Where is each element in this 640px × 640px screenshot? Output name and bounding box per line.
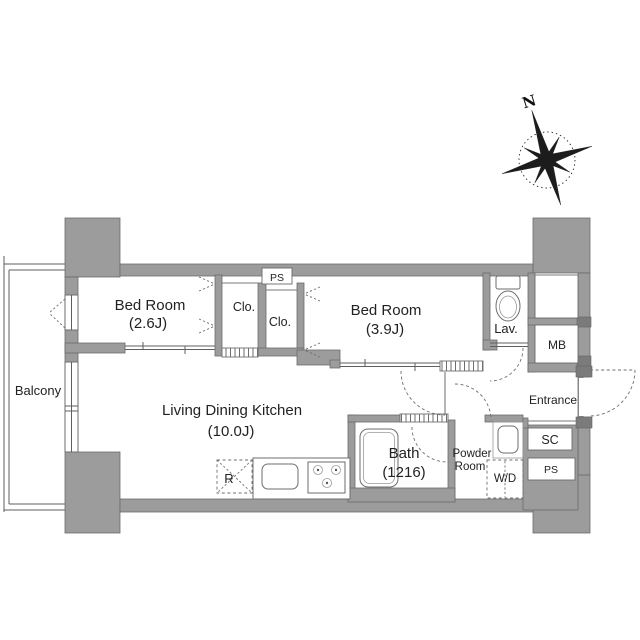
balcony: Balcony bbox=[4, 256, 65, 512]
closet-right-door-marks bbox=[304, 287, 320, 357]
toilet-icon bbox=[496, 276, 520, 321]
pipe-space-lower-label: PS bbox=[544, 464, 558, 476]
wall-left-a bbox=[65, 277, 78, 295]
wall-lav-door-stub bbox=[483, 340, 497, 350]
closet-right-label: Clo. bbox=[269, 315, 291, 329]
bedroom-large-size: (3.9J) bbox=[366, 321, 404, 338]
refrigerator-space bbox=[217, 460, 252, 493]
wall-bedroom-large-corner bbox=[330, 360, 340, 368]
kitchen-counter bbox=[253, 458, 350, 499]
bedroom-large-folding-door bbox=[440, 361, 483, 371]
lav-door-swing bbox=[490, 348, 523, 381]
wall-closet-right-side bbox=[297, 283, 304, 355]
entrance-label: Entrance bbox=[529, 393, 577, 407]
entrance-door-swing bbox=[589, 370, 635, 416]
closet-left-label: Clo. bbox=[233, 300, 255, 314]
entrance-door-opening bbox=[579, 378, 590, 416]
closet-folding-door bbox=[222, 348, 258, 357]
pillar-top-right bbox=[533, 218, 590, 273]
bedroom-small-size: (2.6J) bbox=[129, 315, 167, 332]
wall-anchor-mb-bottom bbox=[577, 356, 591, 367]
wall-powder-right bbox=[523, 418, 528, 428]
wall-closet-divider bbox=[258, 283, 266, 355]
powder-room-label-1: Powder bbox=[453, 448, 492, 460]
wall-bottom bbox=[120, 499, 533, 512]
meter-box-label: MB bbox=[548, 338, 566, 352]
bedroom-small-label: Bed Room bbox=[115, 297, 186, 314]
washbasin-icon bbox=[493, 422, 523, 458]
bath-size: (1216) bbox=[382, 464, 425, 481]
shoe-closet-label: SC bbox=[541, 433, 558, 447]
wall-anchor-entrance-bottom bbox=[576, 417, 592, 428]
bedroom-large-door-swing bbox=[401, 371, 445, 415]
wall-closet-left-side bbox=[215, 275, 222, 356]
bedroom-large-sliding-door bbox=[340, 359, 440, 371]
bedroom-balcony-window bbox=[65, 295, 78, 330]
wall-top bbox=[120, 264, 533, 276]
closet-left-door-marks bbox=[199, 277, 215, 333]
compass-diagonal-star bbox=[512, 125, 582, 195]
compass-rose: N bbox=[482, 79, 606, 218]
bath-label: Bath bbox=[389, 445, 420, 462]
wall-mb-bottom bbox=[528, 363, 583, 372]
bedroom-window-swing bbox=[49, 299, 65, 328]
pillar-top-left bbox=[65, 218, 120, 277]
ldk-balcony-window bbox=[65, 362, 78, 452]
wall-anchor-entrance-top bbox=[576, 366, 592, 377]
lavatory-label: Lav. bbox=[494, 321, 518, 336]
ldk-label: Living Dining Kitchen bbox=[162, 402, 302, 419]
refrigerator-label: R bbox=[224, 471, 233, 486]
balcony-label: Balcony bbox=[15, 383, 62, 398]
pipe-space-upper-label: PS bbox=[270, 272, 284, 284]
pillar-bottom-left bbox=[65, 452, 120, 533]
powder-room-label-2: Room bbox=[455, 461, 486, 473]
wall-bath-top bbox=[348, 415, 400, 422]
bedroom-small-sliding-door bbox=[125, 342, 215, 354]
wall-anchor-mb-top bbox=[577, 317, 591, 327]
floor-plan-page: Balcony bbox=[0, 0, 640, 640]
wall-bedroom-small-bottom bbox=[65, 343, 125, 353]
ldk-size: (10.0J) bbox=[208, 423, 255, 440]
bedroom-large-label: Bed Room bbox=[351, 302, 422, 319]
stove-icon bbox=[308, 462, 345, 493]
floor-plan-canvas: Balcony bbox=[0, 0, 640, 640]
compass-north-label: N bbox=[520, 91, 539, 112]
kitchen-sink-icon bbox=[262, 464, 298, 489]
utility-space bbox=[535, 275, 578, 318]
wall-mb-top bbox=[528, 318, 578, 325]
wall-bath-bottom bbox=[348, 488, 455, 502]
windows bbox=[65, 295, 78, 452]
washer-dryer-label: W/D bbox=[494, 473, 516, 485]
wall-lav-left bbox=[483, 273, 490, 350]
bath-folding-door bbox=[400, 414, 448, 422]
